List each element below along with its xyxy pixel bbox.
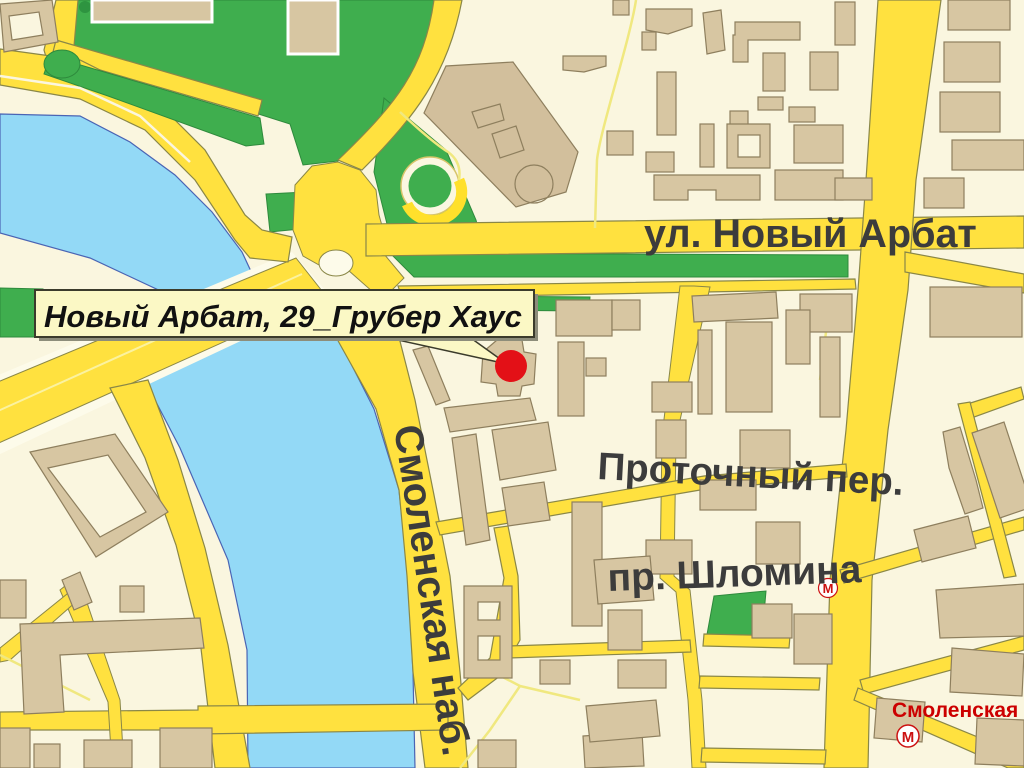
svg-text:ул. Новый Арбат: ул. Новый Арбат [644,212,977,256]
svg-text:Смоленская: Смоленская [892,699,1018,722]
svg-text:Новый Арбат, 29_Грубер Хаус: Новый Арбат, 29_Грубер Хаус [44,299,522,334]
svg-text:пр. Шломина: пр. Шломина [607,548,863,600]
svg-text:М: М [902,729,915,746]
